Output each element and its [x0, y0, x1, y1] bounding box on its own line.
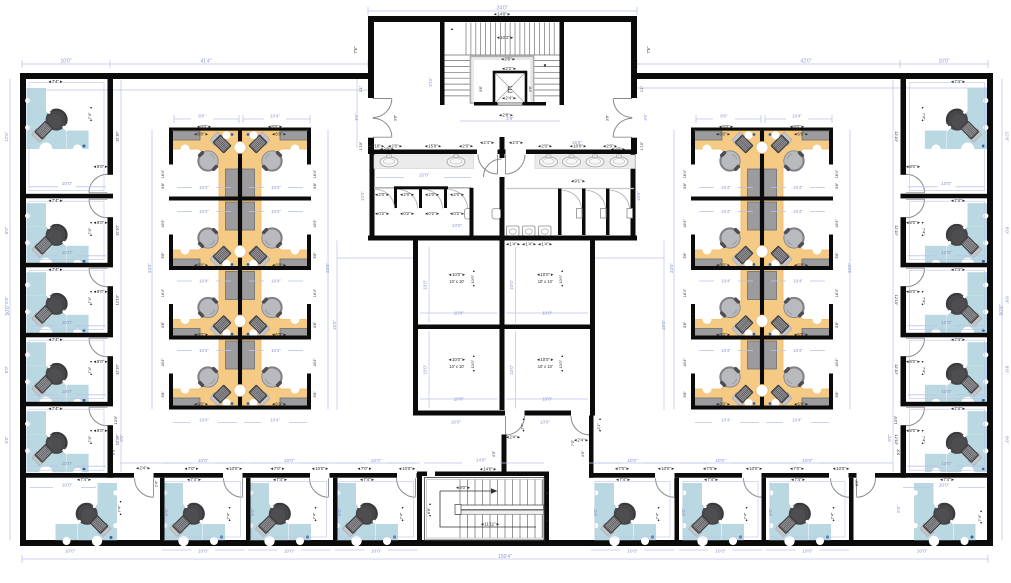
svg-text:◄0'2"►: ◄0'2"►	[399, 211, 415, 216]
svg-text:16'4": 16'4"	[161, 169, 165, 178]
svg-text:▲: ▲	[450, 27, 454, 31]
svg-text:12'10": 12'10"	[894, 225, 899, 236]
svg-text:10' x 10': 10' x 10'	[538, 364, 553, 369]
svg-text:12'10": 12'10"	[894, 295, 899, 306]
svg-text:8'0": 8'0"	[4, 365, 9, 373]
svg-text:7'4": 7'4"	[743, 512, 748, 519]
svg-text:3'8": 3'8"	[161, 321, 165, 328]
svg-text:3'8": 3'8"	[835, 321, 839, 328]
svg-text:▼: ▼	[921, 290, 924, 294]
svg-text:7'4": 7'4"	[922, 367, 927, 374]
svg-text:7'4": 7'4"	[922, 297, 927, 304]
svg-text:33'0": 33'0"	[847, 263, 852, 274]
svg-text:7'4": 7'4"	[226, 512, 231, 519]
svg-text:8'0": 8'0"	[337, 508, 342, 516]
svg-text:3'8": 3'8"	[313, 321, 317, 328]
svg-text:◄2'0"►: ◄2'0"►	[424, 192, 440, 197]
svg-text:33'0": 33'0"	[669, 263, 674, 274]
svg-text:◄2'4"►: ◄2'4"►	[508, 140, 524, 145]
svg-text:10'4": 10'4"	[271, 348, 281, 353]
svg-text:16'4": 16'4"	[313, 358, 317, 367]
svg-text:◄10'0"►: ◄10'0"►	[657, 466, 675, 471]
svg-text:8'0": 8'0"	[1005, 296, 1010, 304]
svg-text:8'0": 8'0"	[1005, 227, 1010, 235]
svg-text:◄14'0"►: ◄14'0"►	[493, 11, 511, 16]
svg-text:16'4": 16'4"	[683, 169, 687, 178]
svg-text:7'0": 7'0"	[571, 439, 575, 446]
svg-text:10'4": 10'4"	[270, 114, 280, 119]
svg-text:10' x 10': 10' x 10'	[538, 279, 553, 284]
svg-text:8'6": 8'6"	[643, 113, 648, 120]
svg-text:◄8'0"►: ◄8'0"►	[267, 124, 283, 129]
svg-text:7'11": 7'11"	[544, 504, 548, 513]
svg-text:10'0": 10'0"	[452, 223, 463, 228]
svg-text:8'0": 8'0"	[887, 434, 892, 442]
svg-text:◄2'2"►: ◄2'2"►	[501, 66, 517, 71]
svg-text:◄7'0"►: ◄7'0"►	[184, 466, 200, 471]
svg-text:16'4": 16'4"	[313, 219, 317, 228]
svg-text:1'10": 1'10"	[640, 141, 644, 150]
svg-text:10'0": 10'0"	[62, 389, 73, 395]
svg-text:◄10'0"►: ◄10'0"►	[448, 357, 466, 362]
svg-text:12'10": 12'10"	[115, 294, 120, 305]
svg-text:15'0": 15'0"	[572, 140, 583, 145]
svg-text:▲: ▲	[598, 417, 601, 421]
svg-text:10'0": 10'0"	[62, 483, 73, 489]
svg-text:▲: ▲	[979, 509, 982, 513]
svg-text:12'10": 12'10"	[115, 131, 120, 142]
svg-text:10'0": 10'0"	[454, 311, 465, 316]
svg-text:10'0": 10'0"	[423, 364, 428, 375]
svg-text:◄2'4"►: ◄2'4"►	[135, 466, 151, 471]
svg-text:▲: ▲	[428, 502, 431, 506]
svg-text:▼: ▼	[401, 506, 404, 510]
svg-text:12'10": 12'10"	[894, 131, 899, 142]
svg-text:◄10'0"►: ◄10'0"►	[536, 357, 554, 362]
svg-text:3'6": 3'6"	[606, 114, 610, 121]
svg-text:◄7'4"►: ◄7'4"►	[48, 337, 64, 342]
svg-text:◄8'0"►: ◄8'0"►	[455, 485, 471, 490]
svg-text:8'0": 8'0"	[4, 436, 9, 444]
svg-text:1'1": 1'1"	[640, 85, 644, 92]
svg-text:4'0": 4'0"	[581, 450, 585, 457]
svg-text:7'4": 7'4"	[87, 296, 92, 303]
svg-text:7'6": 7'6"	[646, 46, 651, 53]
svg-text:10'4": 10'4"	[721, 348, 731, 353]
svg-text:10'0": 10'0"	[938, 59, 949, 65]
svg-text:3'6": 3'6"	[394, 114, 398, 121]
svg-text:16'4": 16'4"	[835, 358, 839, 367]
svg-text:8'0": 8'0"	[164, 508, 169, 516]
svg-text:▲: ▲	[472, 354, 475, 358]
svg-text:16'4": 16'4"	[835, 219, 839, 228]
svg-text:10'4": 10'4"	[721, 209, 731, 214]
svg-text:10'4": 10'4"	[721, 279, 731, 284]
svg-text:10'4": 10'4"	[271, 209, 281, 214]
svg-text:10'4": 10'4"	[793, 185, 803, 190]
svg-text:▼: ▼	[314, 506, 317, 510]
svg-text:◄2'0"►: ◄2'0"►	[602, 144, 618, 149]
svg-text:50'8": 50'8"	[999, 304, 1005, 315]
svg-text:◄2'0"►: ◄2'0"►	[449, 192, 465, 197]
svg-text:◄7'4"►: ◄7'4"►	[48, 198, 64, 203]
svg-text:7'4": 7'4"	[87, 112, 92, 119]
svg-text:15'0": 15'0"	[419, 173, 430, 179]
svg-text:◄8'0"►: ◄8'0"►	[93, 220, 109, 225]
svg-text:10'0": 10'0"	[540, 420, 551, 425]
svg-text:10'4": 10'4"	[721, 418, 731, 423]
svg-text:3'8": 3'8"	[683, 252, 687, 259]
svg-text:▲: ▲	[561, 354, 564, 358]
svg-text:7'4": 7'4"	[655, 512, 660, 519]
svg-text:16'4": 16'4"	[683, 219, 687, 228]
svg-text:◄7'0"►: ◄7'0"►	[614, 466, 630, 471]
svg-text:3'8": 3'8"	[313, 252, 317, 259]
svg-text:12'10": 12'10"	[894, 434, 899, 445]
svg-text:10'4": 10'4"	[271, 279, 281, 284]
svg-text:◄10'0"►: ◄10'0"►	[745, 466, 763, 471]
svg-text:◄1'4"►: ◄1'4"►	[505, 242, 521, 247]
svg-text:◄14'0"►: ◄14'0"►	[479, 466, 497, 471]
svg-text:◄10'0"►: ◄10'0"►	[448, 272, 466, 277]
svg-text:◄10'2"►: ◄10'2"►	[496, 35, 514, 40]
svg-text:◄2'4"►: ◄2'4"►	[479, 140, 495, 145]
svg-text:10'4": 10'4"	[721, 185, 731, 190]
svg-text:◄7'4"►: ◄7'4"►	[950, 337, 966, 342]
svg-text:◄7'0"►: ◄7'0"►	[270, 466, 286, 471]
svg-text:10'4": 10'4"	[792, 114, 802, 119]
svg-text:10' x 10': 10' x 10'	[449, 364, 464, 369]
svg-text:10'0": 10'0"	[941, 389, 952, 395]
svg-text:▲: ▲	[472, 269, 475, 273]
svg-text:◄0'2"►: ◄0'2"►	[374, 211, 390, 216]
svg-text:2'4": 2'4"	[597, 423, 601, 430]
svg-text:◄2'0"►: ◄2'0"►	[399, 192, 415, 197]
svg-text:150'4": 150'4"	[498, 554, 512, 560]
svg-text:7'4": 7'4"	[87, 366, 92, 373]
svg-text:◄2'0"►: ◄2'0"►	[374, 192, 390, 197]
svg-text:33'0": 33'0"	[147, 263, 152, 274]
svg-text:16'4": 16'4"	[313, 169, 317, 178]
svg-text:10'4": 10'4"	[199, 418, 209, 423]
svg-text:12'6": 12'6"	[1005, 132, 1010, 143]
svg-text:▼: ▼	[543, 63, 547, 68]
svg-text:16'4": 16'4"	[161, 288, 165, 297]
svg-text:10'0": 10'0"	[941, 320, 952, 326]
svg-text:10'0": 10'0"	[62, 320, 73, 326]
svg-text:8'0": 8'0"	[4, 226, 9, 234]
svg-text:7'4": 7'4"	[312, 512, 317, 519]
svg-text:1'1": 1'1"	[359, 85, 363, 92]
svg-text:◄7'4"►: ◄7'4"►	[950, 406, 966, 411]
svg-text:10'0": 10'0"	[470, 359, 475, 368]
svg-text:7'6": 7'6"	[353, 46, 358, 53]
svg-text:12'10": 12'10"	[115, 363, 120, 374]
svg-text:◄7'0"►: ◄7'0"►	[702, 466, 718, 471]
svg-text:◄8'0"►: ◄8'0"►	[789, 124, 805, 129]
svg-text:◄2'4"►: ◄2'4"►	[573, 438, 589, 443]
svg-text:▼: ▼	[745, 506, 748, 510]
svg-text:◄11'11"►: ◄11'11"►	[480, 521, 500, 526]
svg-text:13'0": 13'0"	[893, 415, 898, 424]
svg-text:10'0": 10'0"	[451, 420, 462, 425]
svg-text:8'0": 8'0"	[720, 114, 728, 119]
svg-text:◄2'10"►: ◄2'10"►	[367, 144, 385, 149]
svg-text:12'10": 12'10"	[115, 224, 120, 235]
svg-text:▼: ▼	[921, 360, 924, 364]
svg-text:10'0": 10'0"	[62, 461, 73, 467]
svg-text:◄2'4"►: ◄2'4"►	[501, 96, 517, 101]
svg-text:10' x 10': 10' x 10'	[449, 279, 464, 284]
svg-text:◄7'4"►: ◄7'4"►	[76, 477, 92, 482]
svg-text:16'4": 16'4"	[161, 358, 165, 367]
svg-text:3'8": 3'8"	[161, 252, 165, 259]
svg-text:10'0": 10'0"	[284, 549, 295, 555]
svg-text:10'4": 10'4"	[271, 185, 281, 190]
svg-text:10'0": 10'0"	[627, 549, 638, 555]
svg-text:◄9'1"►: ◄9'1"►	[570, 179, 586, 184]
svg-text:4'0": 4'0"	[492, 450, 496, 457]
svg-text:3'8": 3'8"	[683, 321, 687, 328]
svg-text:9'3": 9'3"	[111, 448, 116, 455]
svg-text:10'4": 10'4"	[199, 209, 209, 214]
svg-text:▼: ▼	[921, 106, 924, 110]
svg-text:▼: ▼	[921, 221, 924, 225]
svg-text:10'4": 10'4"	[792, 418, 802, 423]
svg-text:◄10'0"►: ◄10'0"►	[311, 466, 329, 471]
svg-text:3'6": 3'6"	[479, 85, 483, 92]
svg-text:10'0": 10'0"	[198, 549, 209, 555]
svg-text:◄8'0"►: ◄8'0"►	[196, 124, 212, 129]
svg-text:◄10'0"►: ◄10'0"►	[398, 466, 416, 471]
svg-text:41'4": 41'4"	[200, 59, 211, 65]
svg-text:33'0": 33'0"	[325, 263, 330, 274]
svg-text:8'6": 8'6"	[354, 113, 359, 120]
svg-text:16'4": 16'4"	[683, 358, 687, 367]
svg-text:8'0": 8'0"	[198, 114, 206, 119]
svg-text:8'0": 8'0"	[250, 508, 255, 516]
svg-text:◄7'0"►: ◄7'0"►	[789, 466, 805, 471]
svg-text:16'4": 16'4"	[683, 288, 687, 297]
svg-text:10'0": 10'0"	[941, 181, 952, 187]
svg-text:▼: ▼	[657, 506, 660, 510]
svg-text:8'0": 8'0"	[681, 508, 686, 516]
svg-text:10'0": 10'0"	[509, 279, 514, 290]
svg-text:8'0": 8'0"	[768, 508, 773, 516]
svg-text:3'8": 3'8"	[835, 391, 839, 398]
svg-text:◄2'0"►: ◄2'0"►	[458, 144, 474, 149]
svg-text:◄1'4"►: ◄1'4"►	[521, 242, 537, 247]
svg-text:◄7'4"►: ◄7'4"►	[950, 198, 966, 203]
svg-text:10'0": 10'0"	[941, 461, 952, 467]
svg-text:▼: ▼	[832, 506, 835, 510]
svg-text:8'0": 8'0"	[1005, 436, 1010, 444]
svg-text:10'0": 10'0"	[558, 274, 563, 283]
svg-text:16'4": 16'4"	[161, 219, 165, 228]
svg-text:◄0'2"►: ◄0'2"►	[424, 211, 440, 216]
svg-text:◄7'4"►: ◄7'4"►	[939, 477, 955, 482]
svg-text:3'8": 3'8"	[313, 182, 317, 189]
svg-text:7'4": 7'4"	[399, 512, 404, 519]
svg-text:3'8": 3'8"	[835, 182, 839, 189]
svg-text:16'4": 16'4"	[835, 288, 839, 297]
svg-text:◄6'0"►: ◄6'0"►	[793, 132, 809, 137]
svg-text:10'0": 10'0"	[65, 549, 76, 555]
svg-text:◄8'0"►: ◄8'0"►	[905, 428, 921, 433]
svg-text:10'4": 10'4"	[793, 209, 803, 214]
svg-text:10'0": 10'0"	[917, 549, 928, 555]
svg-text:◄8'0"►: ◄8'0"►	[93, 359, 109, 364]
svg-text:8'0": 8'0"	[593, 508, 598, 516]
svg-text:E: E	[507, 85, 513, 95]
svg-text:◄7'4"►: ◄7'4"►	[48, 267, 64, 272]
svg-text:◄8'0"►: ◄8'0"►	[93, 289, 109, 294]
svg-text:10'4": 10'4"	[793, 348, 803, 353]
svg-text:8'0": 8'0"	[4, 296, 9, 304]
svg-text:9'10": 9'10"	[428, 77, 433, 87]
svg-text:16'4": 16'4"	[835, 169, 839, 178]
svg-text:3'8": 3'8"	[683, 182, 687, 189]
svg-text:50'8": 50'8"	[5, 304, 11, 315]
svg-text:8'0": 8'0"	[119, 434, 124, 442]
svg-text:10'4": 10'4"	[270, 418, 280, 423]
svg-text:▼: ▼	[545, 519, 548, 523]
svg-text:7'4": 7'4"	[830, 512, 835, 519]
svg-text:3'8": 3'8"	[835, 252, 839, 259]
svg-text:10'0": 10'0"	[939, 483, 950, 489]
svg-text:10'0": 10'0"	[542, 397, 553, 402]
svg-text:10'4": 10'4"	[199, 348, 209, 353]
svg-text:▼: ▼	[89, 106, 92, 110]
svg-text:10'4": 10'4"	[199, 279, 209, 284]
svg-text:10'0": 10'0"	[454, 397, 465, 402]
svg-text:3'8": 3'8"	[161, 182, 165, 189]
svg-text:◄7'4"►: ◄7'4"►	[48, 406, 64, 411]
svg-text:◄2'6"►: ◄2'6"►	[500, 57, 516, 62]
svg-text:15'0": 15'0"	[332, 320, 337, 331]
svg-text:◄7'4"►: ◄7'4"►	[48, 79, 64, 84]
svg-text:2'4": 2'4"	[154, 480, 159, 487]
svg-text:10'0": 10'0"	[802, 549, 813, 555]
svg-text:◄6'0"►: ◄6'0"►	[715, 132, 731, 137]
svg-text:10'0": 10'0"	[941, 250, 952, 256]
svg-text:8'8": 8'8"	[427, 507, 431, 514]
svg-text:12'10": 12'10"	[894, 364, 899, 375]
svg-text:9'3": 9'3"	[896, 448, 901, 455]
svg-text:◄6'0"►: ◄6'0"►	[193, 132, 209, 137]
svg-text:7'4": 7'4"	[87, 227, 92, 234]
svg-text:▲: ▲	[561, 269, 564, 273]
svg-text:◄8'0"►: ◄8'0"►	[905, 359, 921, 364]
svg-text:◄8'0"►: ◄8'0"►	[93, 428, 109, 433]
svg-text:10'0": 10'0"	[470, 274, 475, 283]
svg-text:14'0": 14'0"	[476, 458, 487, 463]
svg-text:◄15'0"►: ◄15'0"►	[424, 144, 442, 149]
svg-text:8'0": 8'0"	[855, 479, 859, 486]
svg-text:10'0": 10'0"	[371, 549, 382, 555]
svg-text:42'0": 42'0"	[800, 59, 811, 65]
svg-text:10'0": 10'0"	[360, 191, 365, 202]
svg-text:2'8": 2'8"	[506, 116, 514, 121]
svg-text:▼: ▼	[119, 500, 122, 504]
svg-text:◄0'2"►: ◄0'2"►	[449, 211, 465, 216]
svg-text:◄8'0"►: ◄8'0"►	[905, 220, 921, 225]
svg-text:10'0": 10'0"	[62, 181, 73, 187]
svg-text:7'4": 7'4"	[922, 228, 927, 235]
svg-text:3'8": 3'8"	[161, 391, 165, 398]
svg-text:10'0": 10'0"	[558, 359, 563, 368]
svg-text:10'0": 10'0"	[542, 311, 553, 316]
svg-text:◄6'0"►: ◄6'0"►	[271, 132, 287, 137]
svg-text:◄8'0"►: ◄8'0"►	[905, 164, 921, 169]
svg-text:10'0": 10'0"	[423, 279, 428, 290]
svg-text:16'4": 16'4"	[313, 288, 317, 297]
svg-text:10'4": 10'4"	[793, 279, 803, 284]
svg-text:3'8": 3'8"	[683, 391, 687, 398]
svg-text:1'10": 1'10"	[359, 141, 363, 150]
svg-text:7'4": 7'4"	[922, 436, 927, 443]
svg-text:◄7'4"►: ◄7'4"►	[950, 267, 966, 272]
svg-text:7'4": 7'4"	[977, 514, 982, 521]
svg-text:15'0": 15'0"	[661, 320, 666, 331]
svg-text:▼: ▼	[921, 429, 924, 433]
svg-text:◄8'0"►: ◄8'0"►	[905, 289, 921, 294]
svg-text:◄8'0"►: ◄8'0"►	[93, 164, 109, 169]
svg-text:10'0": 10'0"	[636, 191, 641, 202]
svg-text:10'0": 10'0"	[62, 250, 73, 256]
svg-text:◄2'4"►: ◄2'4"►	[505, 435, 521, 440]
svg-text:10'0": 10'0"	[715, 549, 726, 555]
svg-text:3'8": 3'8"	[313, 391, 317, 398]
svg-text:◄7'4"►: ◄7'4"►	[950, 79, 966, 84]
svg-text:◄2'0"►: ◄2'0"►	[537, 144, 553, 149]
svg-text:10'4": 10'4"	[199, 185, 209, 190]
svg-text:10'0": 10'0"	[509, 364, 514, 375]
svg-text:◄10'0"►: ◄10'0"►	[225, 466, 243, 471]
svg-text:7'4": 7'4"	[117, 505, 122, 512]
svg-text:◄8'0"►: ◄8'0"►	[718, 124, 734, 129]
svg-text:◄1'4"►: ◄1'4"►	[537, 242, 553, 247]
svg-text:◄10'0"►: ◄10'0"►	[832, 466, 850, 471]
svg-text:◄2'0"►: ◄2'0"►	[387, 144, 403, 149]
svg-text:▲: ▲	[522, 417, 525, 421]
svg-text:◄10'0"►: ◄10'0"►	[536, 272, 554, 277]
svg-text:13'0": 13'0"	[113, 415, 118, 424]
svg-text:12'6": 12'6"	[4, 131, 9, 142]
svg-text:▲: ▲	[545, 491, 548, 495]
svg-text:8'0": 8'0"	[1005, 366, 1010, 374]
svg-text:▼: ▼	[228, 506, 231, 510]
svg-text:2'4": 2'4"	[521, 423, 525, 430]
svg-text:7'4": 7'4"	[922, 113, 927, 120]
svg-text:8'0": 8'0"	[896, 505, 901, 513]
svg-text:3'6": 3'6"	[529, 85, 533, 92]
svg-text:10'0": 10'0"	[60, 59, 71, 65]
svg-text:◄7'0"►: ◄7'0"►	[357, 466, 373, 471]
svg-text:7'4": 7'4"	[87, 435, 92, 442]
